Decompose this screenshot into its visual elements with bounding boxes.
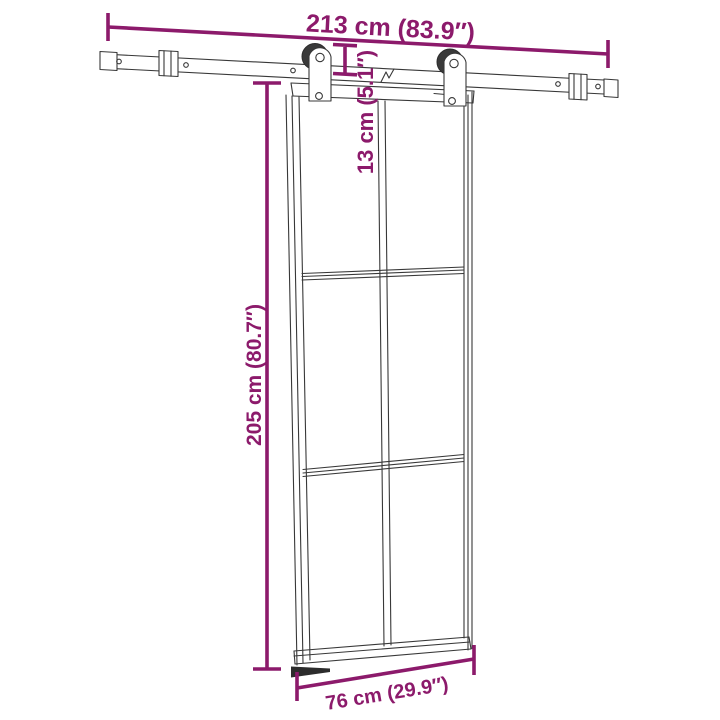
product-dimension-diagram: 213 cm (83.9″) 13 cm (5.1″) 205 cm (80.7… [0, 0, 720, 720]
rail-end-cap-right [604, 79, 618, 98]
dimension-rail-gap: 13 cm (5.1″) [333, 45, 378, 175]
dimension-rail-gap-label: 13 cm (5.1″) [353, 50, 378, 174]
roller-hanger-right [437, 49, 466, 106]
roller-hub-right [450, 59, 458, 67]
dimension-rail-length-label: 213 cm (83.9″) [305, 9, 475, 46]
door-lower-muntin [303, 455, 464, 477]
door-center-muntin [378, 101, 391, 646]
door-panel [286, 83, 474, 678]
rail-connector-left [159, 51, 178, 77]
roller-hanger-left [302, 44, 331, 102]
door-bottom-bar [294, 637, 471, 664]
hanger-bolt-right [449, 98, 456, 105]
rail-stop-clip [381, 69, 394, 82]
diagram-canvas: 213 cm (83.9″) 13 cm (5.1″) 205 cm (80.7… [0, 0, 720, 720]
door-upper-muntin [302, 267, 464, 280]
door-left-stile [286, 95, 310, 665]
rail-end-cap-left [100, 52, 117, 71]
rail-connector-right [569, 74, 587, 101]
roller-hub-left [316, 53, 324, 61]
door-right-stile [464, 92, 472, 650]
dimension-door-height-label: 205 cm (80.7″) [243, 304, 266, 446]
dimension-door-width: 76 cm (29.9″) [297, 645, 474, 715]
dimension-door-height: 205 cm (80.7″) [243, 83, 281, 669]
hanger-bolt-left [316, 93, 323, 100]
